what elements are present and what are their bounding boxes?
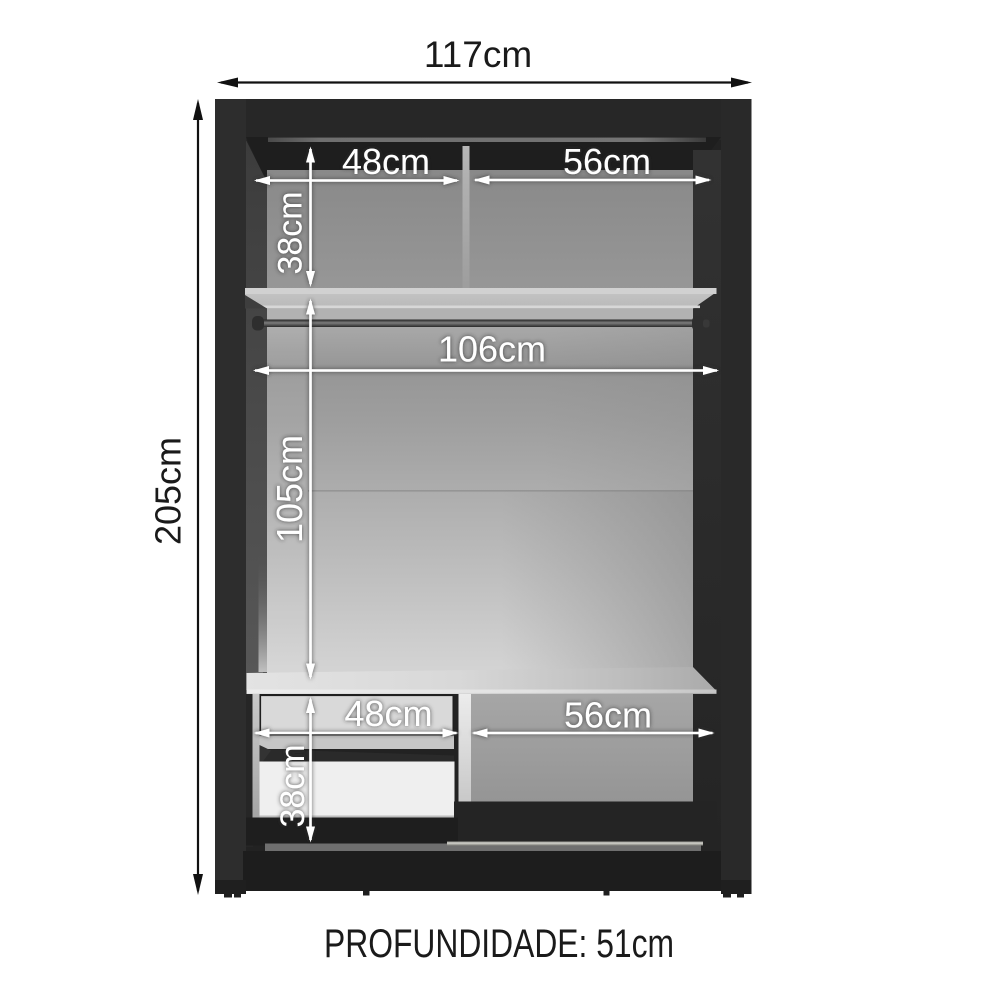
- svg-text:38cm: 38cm: [272, 191, 310, 274]
- svg-text:38cm: 38cm: [274, 744, 312, 827]
- svg-text:48cm: 48cm: [344, 693, 432, 734]
- svg-text:48cm: 48cm: [342, 141, 430, 182]
- svg-text:106cm: 106cm: [438, 329, 546, 370]
- svg-text:PROFUNDIDADE: 51cm: PROFUNDIDADE: 51cm: [324, 922, 674, 966]
- svg-text:117cm: 117cm: [424, 34, 532, 75]
- svg-text:205cm: 205cm: [148, 437, 189, 545]
- svg-text:56cm: 56cm: [563, 141, 651, 182]
- svg-text:105cm: 105cm: [269, 435, 310, 543]
- svg-text:56cm: 56cm: [564, 695, 652, 736]
